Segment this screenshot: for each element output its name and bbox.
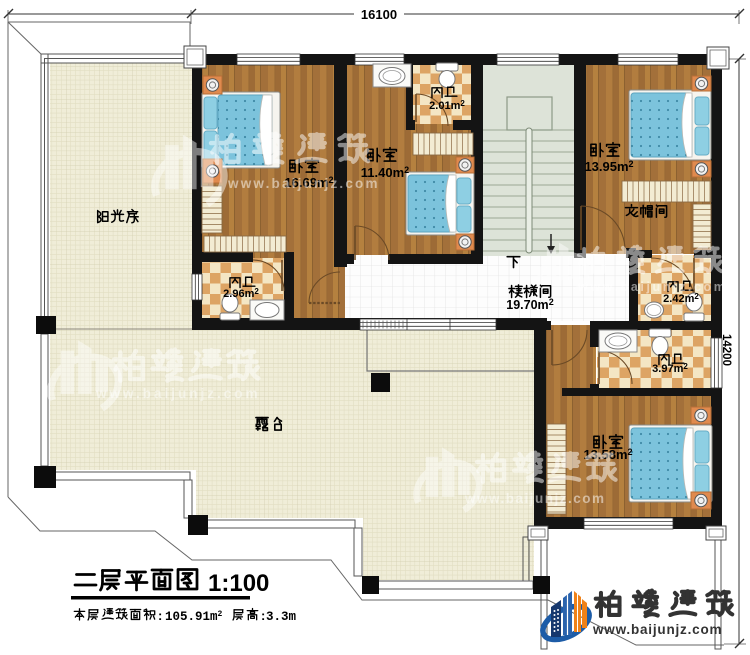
svg-text:www.baijunjz.com: www.baijunjz.com [227, 176, 380, 191]
svg-text:3.97m2: 3.97m2 [652, 362, 688, 375]
svg-text:16100: 16100 [361, 7, 397, 22]
svg-text:www.baijunjz.com: www.baijunjz.com [464, 491, 606, 506]
svg-text:1:100: 1:100 [208, 570, 269, 597]
svg-text::: : [261, 608, 265, 623]
svg-text:2.01m2: 2.01m2 [429, 99, 465, 112]
svg-text:19.70m2: 19.70m2 [506, 297, 553, 312]
svg-text:2.96m2: 2.96m2 [223, 287, 259, 300]
svg-text:www.baijunjz.com: www.baijunjz.com [577, 280, 727, 294]
svg-text:www.baijunjz.com: www.baijunjz.com [592, 622, 722, 637]
svg-text::: : [158, 608, 162, 623]
svg-text:105.91m2: 105.91m2 [165, 610, 223, 624]
svg-text:13.95m2: 13.95m2 [584, 159, 633, 174]
svg-text:www.baijunjz.com: www.baijunjz.com [95, 386, 261, 401]
svg-text:3.3m: 3.3m [266, 610, 297, 624]
